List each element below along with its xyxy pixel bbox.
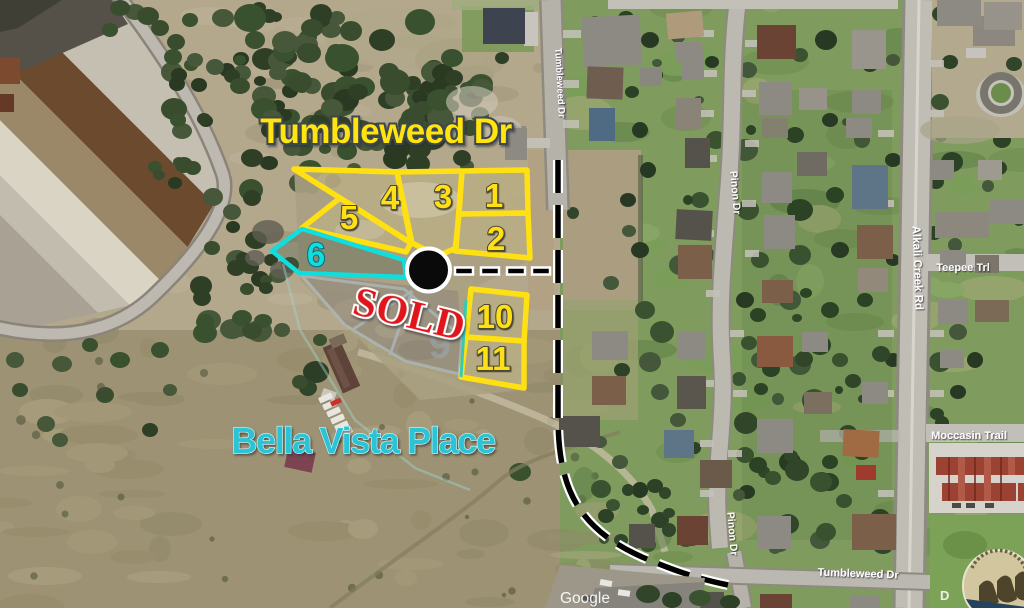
svg-text:Bella Vista Place: Bella Vista Place — [231, 420, 495, 461]
svg-text:10: 10 — [477, 298, 514, 335]
svg-text:5: 5 — [340, 199, 358, 236]
svg-text:6: 6 — [307, 236, 325, 273]
svg-text:Google: Google — [560, 590, 610, 607]
svg-text:3: 3 — [434, 178, 452, 215]
svg-text:4: 4 — [381, 179, 400, 216]
svg-text:Moccasin Trail: Moccasin Trail — [931, 430, 1007, 442]
svg-text:D: D — [940, 588, 949, 603]
svg-text:11: 11 — [476, 340, 511, 377]
svg-text:2: 2 — [487, 220, 505, 257]
svg-text:Teepee Trl: Teepee Trl — [936, 262, 990, 274]
svg-text:1: 1 — [485, 177, 503, 214]
svg-text:Tumbleweed Dr: Tumbleweed Dr — [260, 112, 512, 151]
